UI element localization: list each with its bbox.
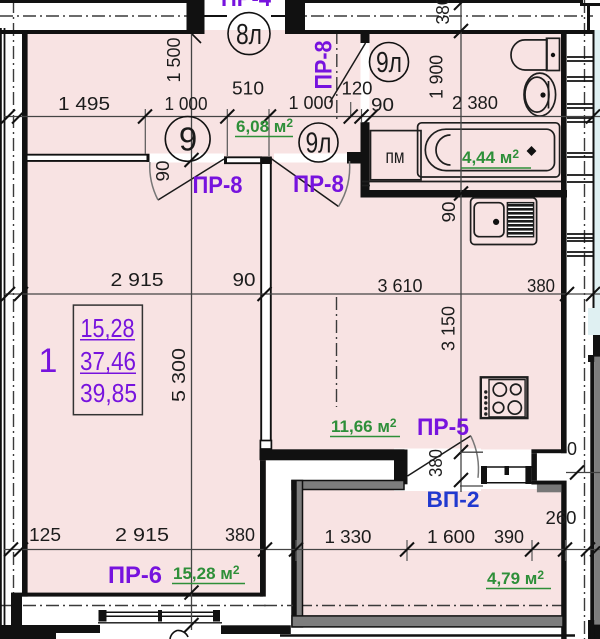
svg-text:37,46: 37,46 [80, 346, 136, 376]
svg-text:ПР-5: ПР-5 [417, 414, 469, 441]
svg-text:90: 90 [153, 161, 173, 182]
svg-text:0: 0 [567, 439, 577, 459]
svg-text:1 000: 1 000 [165, 94, 208, 114]
svg-text:120: 120 [342, 79, 373, 99]
svg-text:4,44 м2: 4,44 м2 [462, 147, 519, 167]
svg-text:9л: 9л [376, 47, 402, 79]
svg-text:ПР-6: ПР-6 [108, 562, 162, 589]
svg-text:380: 380 [433, 0, 453, 25]
svg-text:ПР-8: ПР-8 [293, 171, 344, 198]
svg-text:1 600: 1 600 [427, 527, 475, 547]
svg-text:9: 9 [179, 121, 197, 158]
svg-text:90: 90 [439, 202, 459, 223]
svg-text:8л: 8л [236, 19, 262, 51]
svg-text:1 000: 1 000 [289, 93, 334, 113]
svg-text:15,28: 15,28 [81, 313, 135, 343]
svg-text:ВП-2: ВП-2 [427, 487, 480, 512]
svg-text:90: 90 [371, 95, 394, 115]
svg-text:260: 260 [546, 508, 577, 528]
svg-text:2 915: 2 915 [111, 270, 164, 290]
svg-text:ПР-8: ПР-8 [193, 172, 243, 199]
svg-text:пм: пм [386, 147, 405, 168]
svg-text:5 300: 5 300 [169, 348, 189, 402]
svg-text:9л: 9л [306, 128, 332, 160]
svg-text:39,85: 39,85 [80, 378, 137, 408]
svg-text:90: 90 [233, 270, 256, 290]
svg-text:4,79 м2: 4,79 м2 [487, 568, 544, 588]
svg-text:1 330: 1 330 [325, 527, 372, 547]
svg-text:125: 125 [29, 525, 61, 545]
svg-text:1 900: 1 900 [427, 55, 447, 99]
svg-text:380: 380 [426, 449, 446, 477]
svg-text:3 150: 3 150 [439, 306, 459, 351]
svg-text:11,66 м2: 11,66 м2 [331, 416, 397, 436]
svg-text:510: 510 [232, 79, 264, 99]
svg-text:2 915: 2 915 [115, 525, 169, 545]
svg-text:380: 380 [527, 276, 555, 296]
svg-text:1 500: 1 500 [164, 38, 184, 83]
svg-text:6,08 м2: 6,08 м2 [236, 116, 293, 136]
svg-text:1: 1 [39, 342, 58, 380]
svg-text:380: 380 [225, 525, 255, 545]
svg-text:1 495: 1 495 [58, 94, 110, 114]
svg-text:3 610: 3 610 [378, 276, 423, 296]
svg-text:ПР-8: ПР-8 [311, 41, 338, 90]
svg-text:15,28 м2: 15,28 м2 [173, 563, 240, 583]
svg-text:2 380: 2 380 [452, 93, 498, 113]
svg-text:ПР-4: ПР-4 [221, 0, 272, 12]
svg-text:390: 390 [494, 527, 524, 547]
